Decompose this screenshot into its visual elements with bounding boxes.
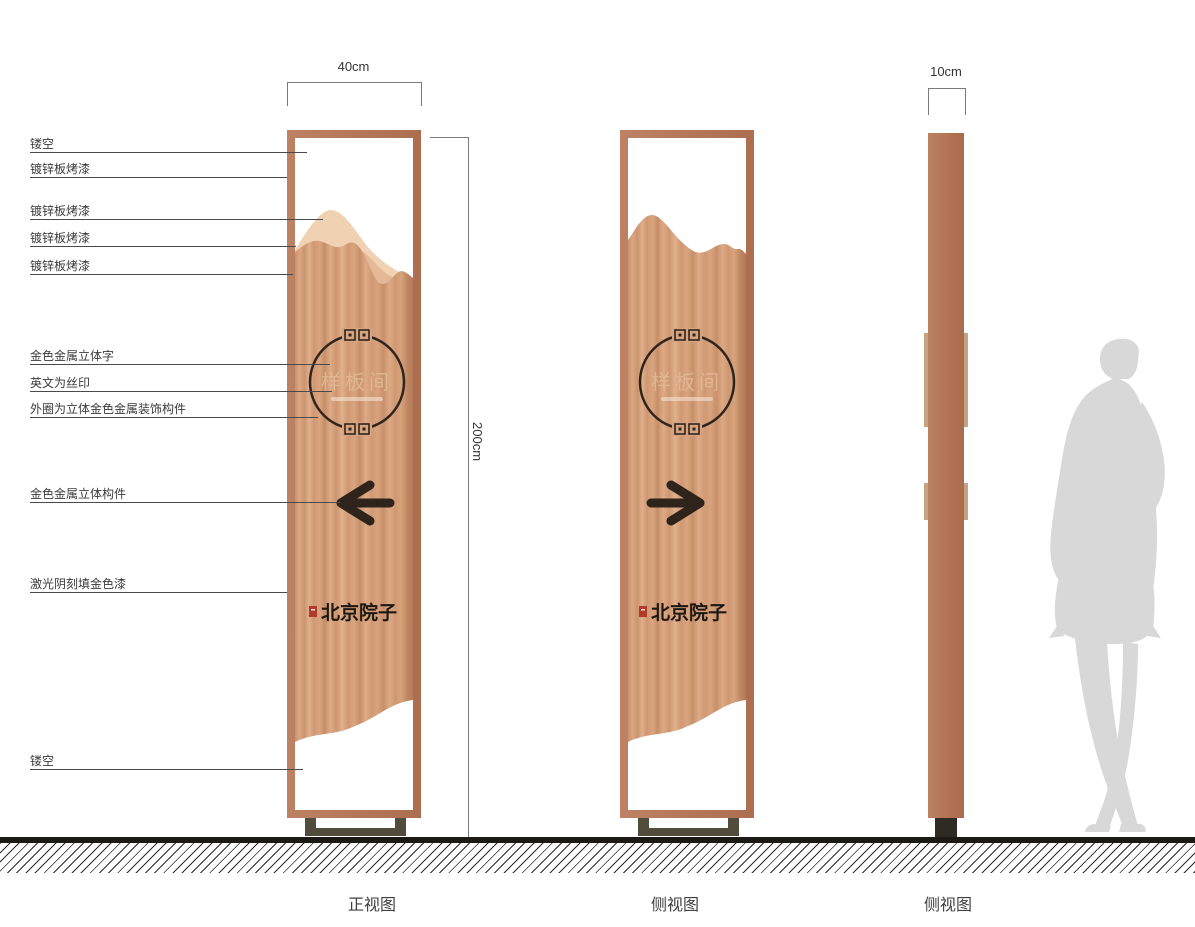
english-silkscreen-strip — [331, 397, 383, 401]
annotation-label: 金色金属立体字 — [30, 347, 114, 364]
fret-ornament-top — [672, 328, 702, 342]
room-name-text: 样板间 — [651, 371, 723, 394]
front-view-panel: 样板间 北京院子 — [295, 138, 413, 810]
leader-line — [30, 152, 307, 153]
dimension-side-width: 10cm — [910, 64, 982, 79]
side-profile-bar — [928, 133, 964, 818]
leader-line — [30, 219, 323, 220]
annotation-label: 金色金属立体构件 — [30, 485, 126, 502]
annotation-label: 激光阴刻填金色漆 — [30, 575, 126, 592]
leader-line — [30, 592, 287, 593]
annotation-label: 镀锌板烤漆 — [30, 202, 90, 219]
leader-line — [30, 274, 293, 275]
dimension-line-200cm — [468, 137, 469, 837]
fret-ornament-top — [342, 328, 372, 342]
leader-line — [30, 417, 318, 418]
annotation-label: 外圈为立体金色金属装饰构件 — [30, 400, 186, 417]
side-profile-protrusion-arrow — [924, 483, 928, 520]
red-seal — [639, 606, 647, 617]
side-profile-base — [935, 818, 957, 838]
wood-body — [628, 215, 746, 742]
drawing-canvas: 镂空 镀锌板烤漆 镀锌板烤漆 镀锌板烤漆 镀锌板烤漆 金色金属立体字 英文为丝印… — [0, 0, 1195, 927]
caption-side-view-2: 侧视图 — [888, 891, 1008, 915]
side-view-panel: 样板间 北京院子 — [628, 138, 746, 810]
dimension-height: 200cm — [470, 422, 485, 461]
side-view-pillar: 样板间 北京院子 — [620, 130, 754, 818]
annotation-label: 镂空 — [30, 752, 54, 769]
leader-line — [30, 364, 330, 365]
dimension-bracket-40cm — [287, 82, 422, 106]
base-bracket — [638, 818, 739, 836]
side-profile-protrusion-circle — [964, 333, 968, 427]
side-profile-protrusion-arrow — [964, 483, 968, 520]
fret-ornament-bottom — [672, 422, 702, 436]
caption-side-view-1: 侧视图 — [615, 891, 735, 915]
caption-front-view: 正视图 — [312, 891, 432, 915]
english-silkscreen-strip — [661, 397, 713, 401]
side-profile-protrusion-circle — [924, 333, 928, 427]
leader-line — [30, 391, 332, 392]
annotation-label: 镀锌板烤漆 — [30, 160, 90, 177]
leader-line — [30, 769, 303, 770]
annotation-label: 镂空 — [30, 135, 54, 152]
annotation-label: 镀锌板烤漆 — [30, 229, 90, 246]
red-seal — [309, 606, 317, 617]
annotation-label: 英文为丝印 — [30, 374, 90, 391]
ground-hatch — [0, 843, 1195, 873]
dimension-front-width: 40cm — [287, 59, 420, 74]
dimension-bracket-10cm — [928, 88, 966, 115]
fret-ornament-bottom — [342, 422, 372, 436]
human-silhouette — [1035, 338, 1195, 835]
brand-calligraphy: 北京院子 — [321, 601, 397, 624]
brand-calligraphy: 北京院子 — [651, 601, 727, 624]
annotation-label: 镀锌板烤漆 — [30, 257, 90, 274]
front-view-graphic: 样板间 北京院子 — [295, 138, 413, 810]
front-view-pillar: 样板间 北京院子 — [287, 130, 421, 818]
leader-line — [30, 177, 287, 178]
leader-line — [30, 502, 341, 503]
side-view-graphic: 样板间 北京院子 — [628, 138, 746, 810]
leader-line — [30, 246, 296, 247]
dimension-tick-200cm — [430, 137, 468, 138]
base-bracket — [305, 818, 406, 836]
